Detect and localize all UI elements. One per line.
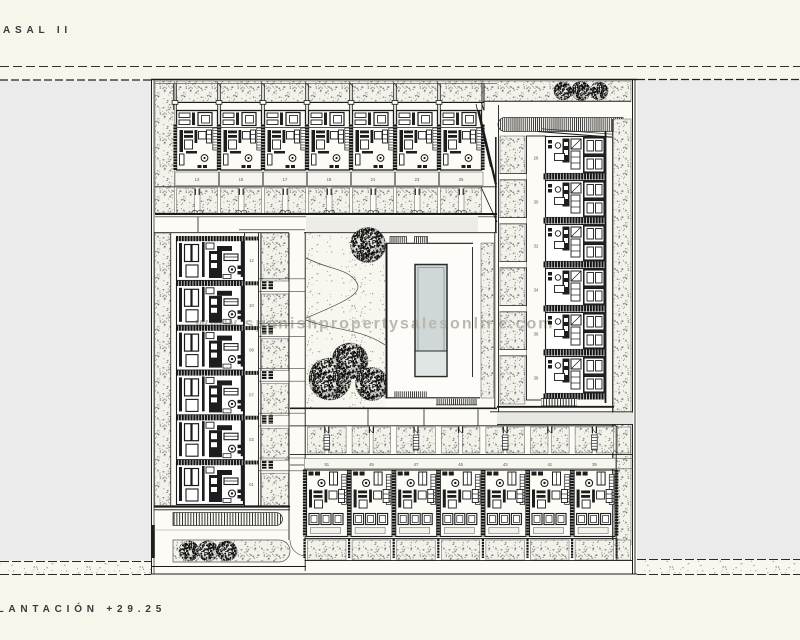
svg-text:32: 32 (534, 244, 539, 249)
svg-text:07: 07 (249, 392, 254, 397)
svg-text:www.spanishpropertysalesonline: www.spanishpropertysalesonline.com (194, 316, 554, 333)
svg-text:43: 43 (503, 462, 508, 467)
svg-text:34: 34 (534, 288, 539, 293)
svg-text:39: 39 (592, 462, 597, 467)
svg-text:49: 49 (369, 462, 374, 467)
svg-text:21: 21 (371, 177, 376, 182)
svg-text:19: 19 (327, 177, 332, 182)
svg-text:12: 12 (249, 258, 254, 263)
svg-text:23: 23 (415, 177, 420, 182)
svg-text:30: 30 (534, 200, 539, 205)
svg-text:45: 45 (458, 462, 463, 467)
svg-text:01: 01 (249, 482, 254, 487)
svg-text:CASAL II: CASAL II (0, 25, 72, 36)
svg-text:03: 03 (249, 437, 254, 442)
svg-text:15: 15 (239, 177, 244, 182)
svg-text:25: 25 (459, 177, 464, 182)
svg-text:41: 41 (547, 462, 552, 467)
svg-text:47: 47 (414, 462, 419, 467)
svg-text:08: 08 (249, 348, 254, 353)
svg-text:38: 38 (534, 376, 539, 381)
svg-text:28: 28 (534, 156, 539, 161)
svg-text:17: 17 (283, 177, 288, 182)
svg-text:10: 10 (249, 303, 254, 308)
svg-text:PLANTACIÓN +29.25: PLANTACIÓN +29.25 (0, 602, 166, 615)
svg-text:51: 51 (324, 462, 329, 467)
svg-text:13: 13 (195, 177, 200, 182)
